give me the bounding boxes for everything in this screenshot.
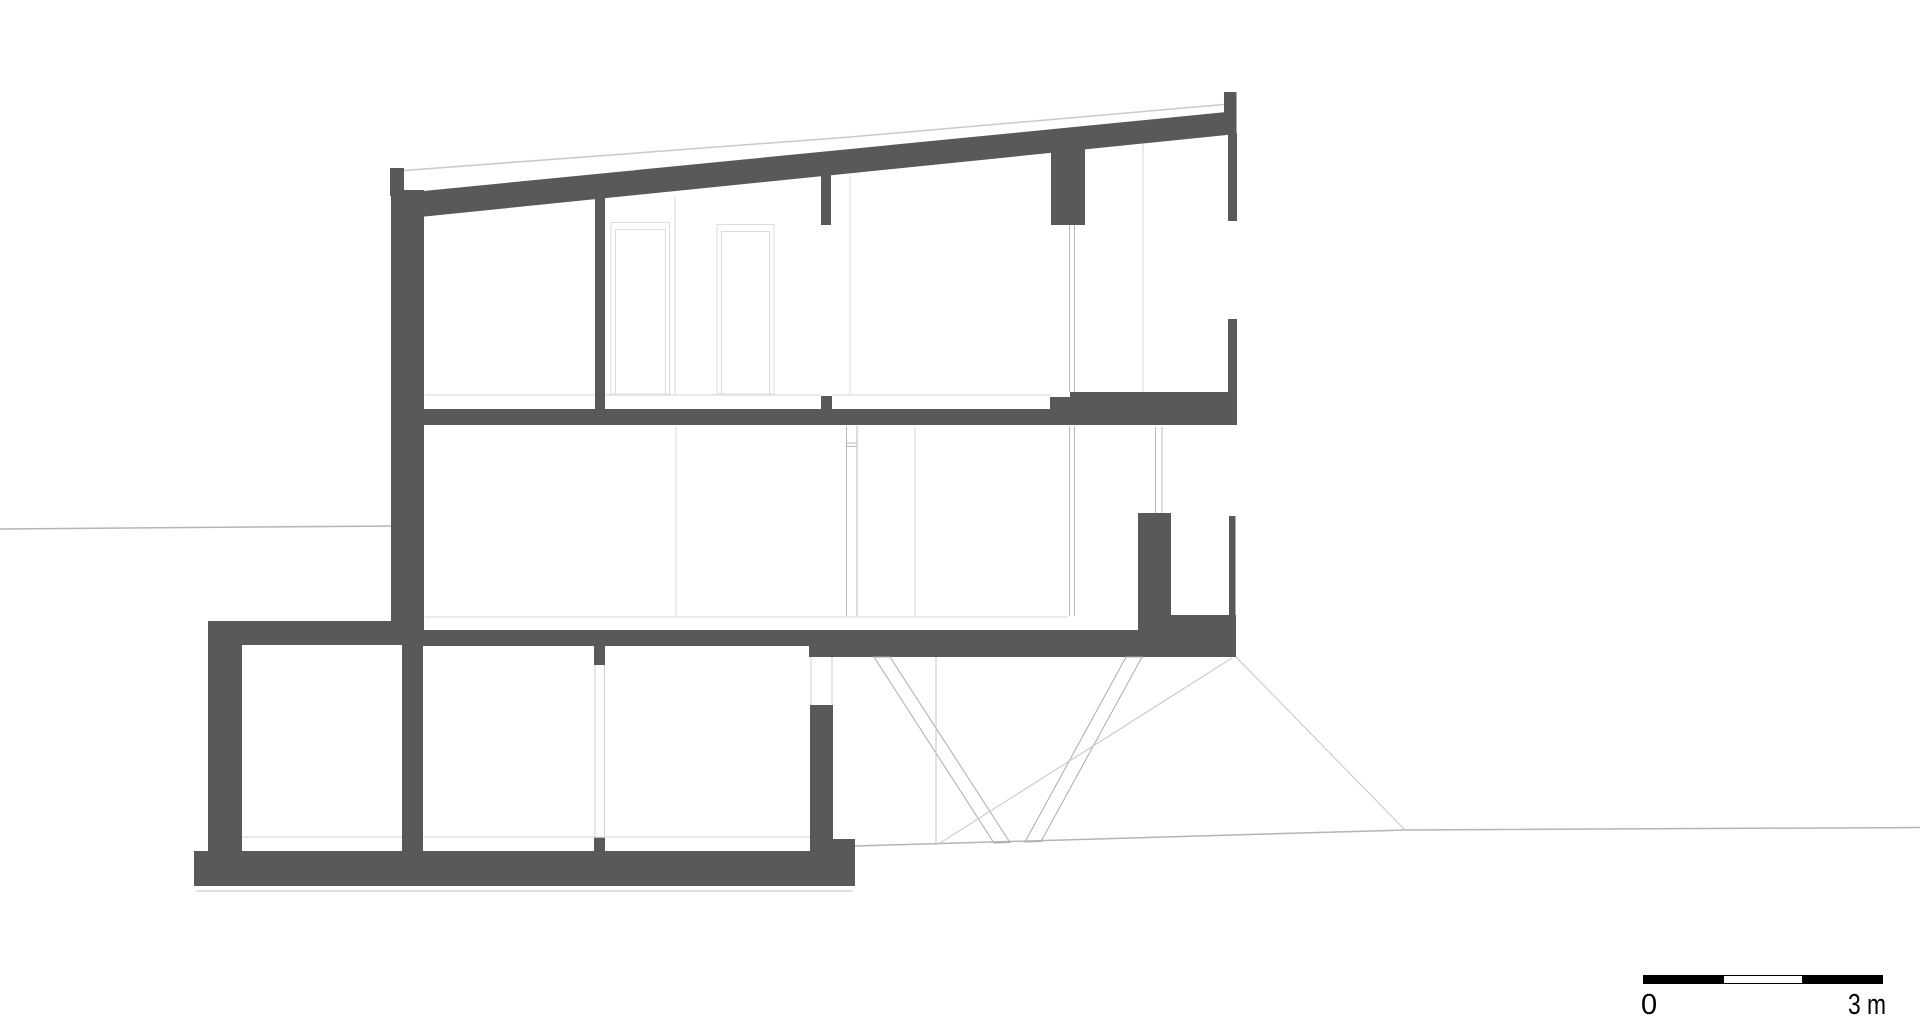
svg-text:3 m: 3 m (1848, 989, 1886, 1021)
svg-text:0: 0 (1641, 989, 1657, 1021)
